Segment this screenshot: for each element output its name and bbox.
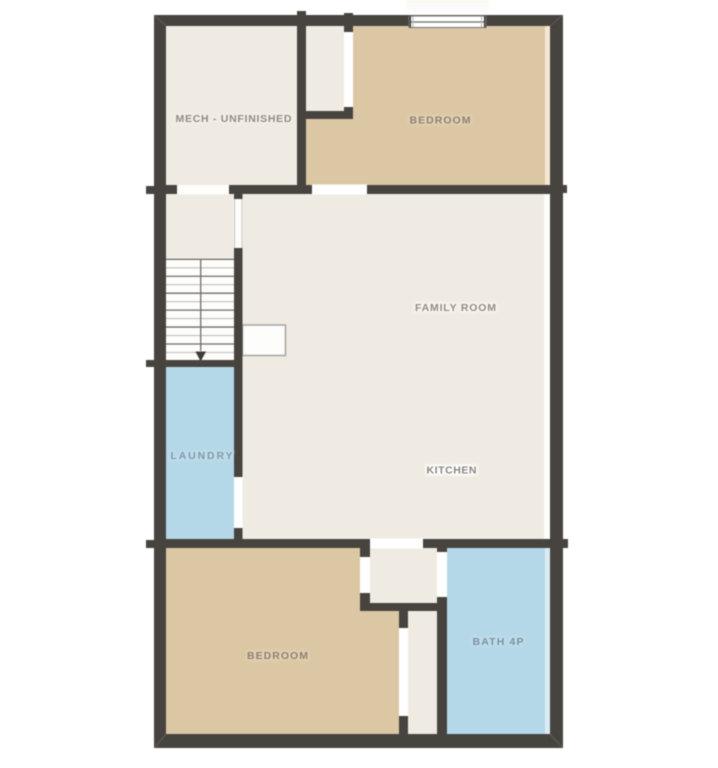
svg-text:FAMILY ROOM: FAMILY ROOM — [415, 302, 496, 314]
svg-text:BEDROOM: BEDROOM — [247, 650, 308, 662]
svg-text:KITCHEN: KITCHEN — [427, 464, 477, 476]
svg-text:MECH - UNFINISHED: MECH - UNFINISHED — [176, 113, 292, 125]
svg-text:BEDROOM: BEDROOM — [410, 114, 471, 126]
svg-text:LAUNDRY: LAUNDRY — [171, 450, 233, 462]
